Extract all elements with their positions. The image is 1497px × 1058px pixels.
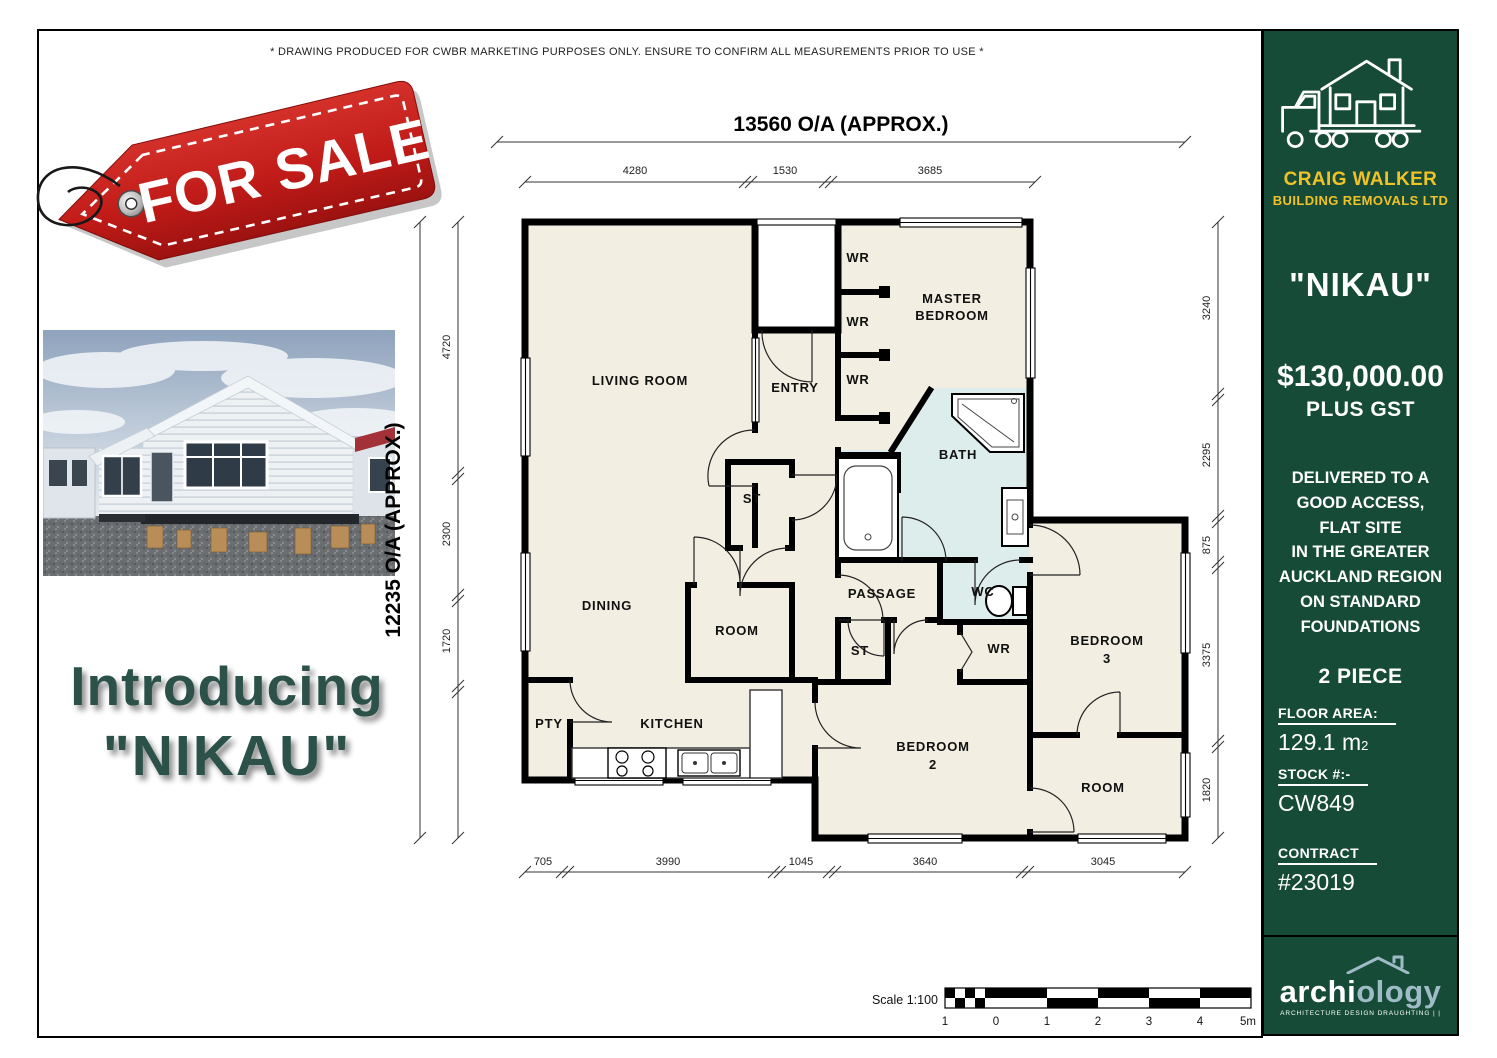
label-bed2-1: BEDROOM xyxy=(896,739,970,754)
label-bed3-1: BEDROOM xyxy=(1070,633,1144,648)
price: $130,000.00 xyxy=(1277,360,1444,394)
intro-line2: "NIKAU" xyxy=(22,721,432,792)
truck-house-logo xyxy=(1277,47,1445,165)
label-room-centre: ROOM xyxy=(715,623,759,638)
front-door xyxy=(151,452,173,502)
label-kitchen: KITCHEN xyxy=(640,716,703,731)
label-bed2-2: 2 xyxy=(929,757,937,772)
stock-value: CW849 xyxy=(1278,790,1443,817)
floor-plan: LIVING ROOM ENTRY WR WR WR MASTER BEDROO… xyxy=(380,95,1260,1045)
dim-bot-4: 3640 xyxy=(913,856,937,868)
front-window xyxy=(185,442,267,488)
label-passage: PASSAGE xyxy=(848,586,916,601)
stock-label: STOCK #:- xyxy=(1278,766,1368,786)
dim-right-5: 1820 xyxy=(1201,778,1213,802)
label-room-br: ROOM xyxy=(1081,780,1125,795)
vanity xyxy=(1002,488,1028,546)
label-wr-4: WR xyxy=(987,641,1010,656)
scale-bar: Scale 1:100 1 0 1 2 3 4 5m xyxy=(872,988,1256,1028)
label-bath: BATH xyxy=(939,447,977,462)
scale-ticks: 1 0 1 2 3 4 5m xyxy=(942,1016,1256,1028)
label-master-1: MASTER xyxy=(922,291,982,306)
contract-value: #23019 xyxy=(1278,869,1443,896)
intro-line1: Introducing xyxy=(22,652,432,721)
dim-left-1: 4720 xyxy=(441,335,453,359)
svg-text:5m: 5m xyxy=(1240,1016,1256,1028)
dim-top-2: 1530 xyxy=(773,165,797,177)
price-gst: PLUS GST xyxy=(1306,398,1415,422)
brand-subtitle: BUILDING REMOVALS LTD xyxy=(1273,193,1448,208)
svg-text:2: 2 xyxy=(1095,1016,1101,1028)
archiology-roof-icon xyxy=(1330,954,1426,974)
svg-text:1: 1 xyxy=(1044,1016,1050,1028)
label-pty: PTY xyxy=(535,716,563,731)
dim-left-3: 1720 xyxy=(441,629,453,653)
label-wr-2: WR xyxy=(846,314,869,329)
label-living: LIVING ROOM xyxy=(592,373,688,388)
label-dining: DINING xyxy=(582,598,632,613)
label-master-2: BEDROOM xyxy=(915,308,989,323)
label-wr-3: WR xyxy=(846,372,869,387)
disclaimer-text: * DRAWING PRODUCED FOR CWBR MARKETING PU… xyxy=(37,46,1217,58)
flyer-page: * DRAWING PRODUCED FOR CWBR MARKETING PU… xyxy=(0,0,1497,1058)
archiology-tagline: ARCHITECTURE DESIGN DRAUGHTING | | xyxy=(1280,1010,1441,1017)
label-wr-1: WR xyxy=(846,250,869,265)
intro-heading: Introducing "NIKAU" xyxy=(22,652,432,792)
spec-block: FLOOR AREA: 129.1 m2 STOCK #:- CW849 CON… xyxy=(1278,705,1443,906)
dim-right-2: 2295 xyxy=(1201,443,1213,467)
dim-right-1: 3240 xyxy=(1201,296,1213,320)
dim-bot-5: 3045 xyxy=(1091,856,1115,868)
brand-name: CRAIG WALKER xyxy=(1284,169,1438,191)
sink xyxy=(678,750,740,776)
dim-bot-3: 1045 xyxy=(789,856,813,868)
dim-right-4: 3375 xyxy=(1201,643,1213,667)
label-bed3-2: 3 xyxy=(1103,651,1111,666)
piece-count: 2 PIECE xyxy=(1318,665,1402,689)
photo-neighbour-left xyxy=(43,448,95,518)
dim-bot-2: 3990 xyxy=(656,856,680,868)
label-entry: ENTRY xyxy=(771,380,819,395)
dim-top-overall: 13560 O/A (APPROX.) xyxy=(733,113,948,136)
model-name: "NIKAU" xyxy=(1289,266,1432,304)
archiology-logo: archiology ARCHITECTURE DESIGN DRAUGHTIN… xyxy=(1264,935,1457,1034)
dim-left-overall: 12235 O/A (APPROX.) xyxy=(382,422,405,637)
scale-label: Scale 1:100 xyxy=(872,993,938,1007)
dim-bot-1: 705 xyxy=(534,856,552,868)
delivery-terms: DELIVERED TO A GOOD ACCESS, FLAT SITE IN… xyxy=(1279,466,1442,639)
stove xyxy=(608,748,666,778)
label-st-1: ST xyxy=(743,491,761,506)
floor-area-label: FLOOR AREA: xyxy=(1278,705,1396,725)
label-wc: WC xyxy=(971,584,994,599)
bathtub xyxy=(838,458,898,558)
dim-left-2: 2300 xyxy=(441,522,453,546)
floor-area-value: 129.1 m2 xyxy=(1278,729,1443,756)
archiology-wordmark: archiology xyxy=(1280,976,1442,1007)
svg-text:1: 1 xyxy=(942,1016,948,1028)
contract-label: CONTRACT xyxy=(1278,845,1377,865)
house-photo xyxy=(43,330,395,576)
dim-top-3: 3685 xyxy=(918,165,942,177)
sidebar: CRAIG WALKER BUILDING REMOVALS LTD "NIKA… xyxy=(1262,29,1459,1036)
label-st-2: ST xyxy=(851,643,869,658)
svg-text:3: 3 xyxy=(1146,1016,1152,1028)
dim-top-1: 4280 xyxy=(623,165,647,177)
svg-text:4: 4 xyxy=(1197,1016,1204,1028)
svg-text:0: 0 xyxy=(993,1016,999,1028)
dim-right-3: 875 xyxy=(1201,536,1213,554)
